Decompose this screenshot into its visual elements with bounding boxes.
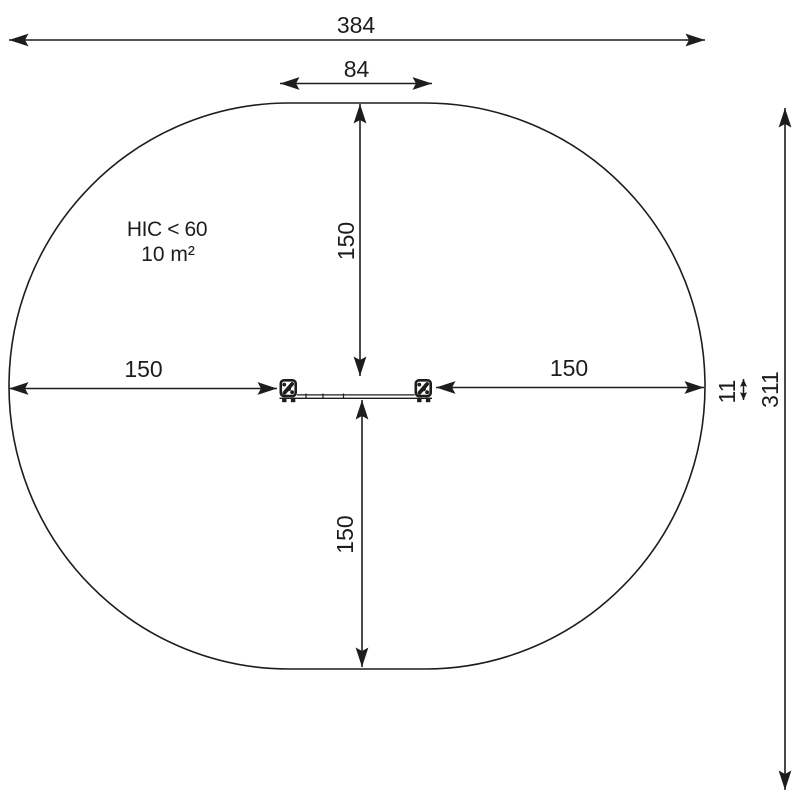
svg-text:150: 150 [124,356,162,382]
svg-text:84: 84 [344,56,370,82]
svg-text:150: 150 [333,222,359,260]
svg-text:150: 150 [332,515,358,553]
svg-text:11: 11 [714,380,740,404]
svg-text:HIC < 60: HIC < 60 [127,218,207,241]
svg-text:384: 384 [337,12,376,38]
svg-text:311: 311 [757,371,783,408]
svg-text:10 m²: 10 m² [141,243,195,266]
svg-text:150: 150 [550,355,588,381]
